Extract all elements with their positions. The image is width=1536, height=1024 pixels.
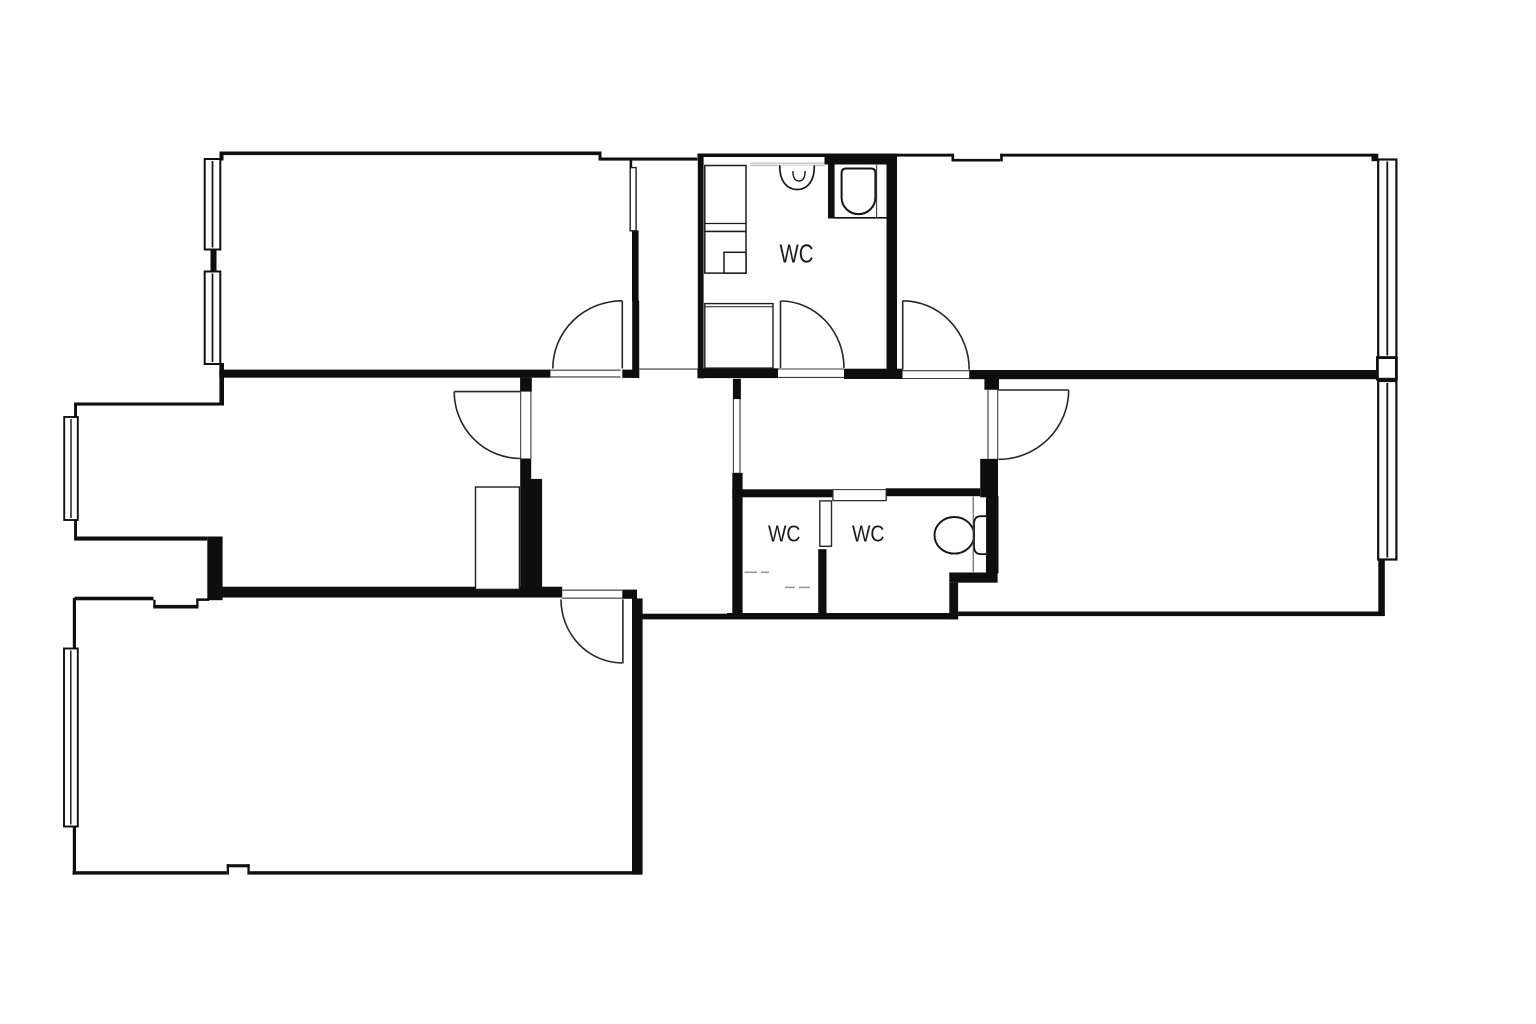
svg-text:WC: WC bbox=[780, 241, 814, 269]
svg-text:WC: WC bbox=[768, 521, 801, 547]
svg-text:WC: WC bbox=[852, 521, 885, 547]
